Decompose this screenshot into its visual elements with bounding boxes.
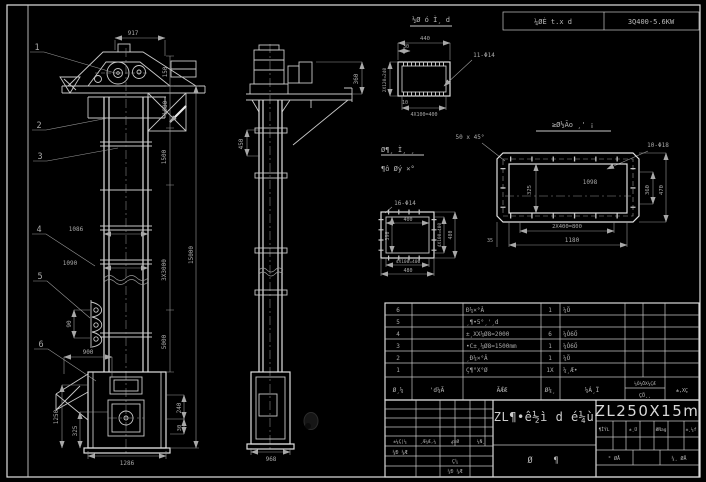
tb-rev-mark: ±¼Ç|¼ [393,439,407,445]
dim-det2-800: 2X400=800 [552,224,582,230]
dim-front-1080: 1080 [162,100,169,115]
detail-top-flange: ½Ø ó Ì¸ d 440 30 11-Φ14 2X120=240 10 4X1… [382,15,495,118]
dim-det2-chamfer: 50 x 45° [456,134,485,141]
cad-drawing-sheet: ¼ØÈ t.x d 3Q400-5.6KW [0,0,706,482]
bom-row-name: ¸¶•5°¸'¸d [466,319,499,326]
tb-design-label: ¼Ð ¼Æ [392,450,407,456]
tb-sheet-number: ¼¸ ØÅ [671,455,686,462]
bom-header-qty: Ø¼¸ [545,387,556,394]
detail-slot-flange: ≥Ø½Ão ¸' ¡ 50 x 45° 10-Φ18 1098 325 360 … [456,120,670,247]
dim-det3-480r: 480 [448,230,454,239]
dim-det1-bottom: 4X100=400 [410,112,437,118]
dim-side-968: 968 [266,456,277,463]
bom-row-no: 5 [396,319,400,326]
dim-front-1286: 1286 [120,460,135,467]
tb-small-3: ØÑag [656,426,667,433]
bom-header-weight-bottom: ÇÖ¸¸ [639,392,651,399]
dim-front-15000: 15000 [188,246,195,264]
dim-front-240: 240 [176,402,183,413]
tb-sheet-total: ° ØÅ [608,455,620,462]
dim-front-325: 325 [72,425,79,436]
dim-det2-35: 35 [487,238,493,244]
tb-check2-label: ¼Ð ¼Æ [447,469,462,475]
boot-casing [88,372,166,448]
view-notes: Ø¶¸ Ì¸ ¸ ¶ô Øý ×° [381,145,424,173]
callout-4: 4 [36,225,41,235]
bom-row-no: 6 [396,307,400,314]
bom-row-no: 3 [396,343,400,350]
dim-front-1500: 1500 [161,149,168,164]
bom-row-qty: 1 [548,343,552,350]
bom-row-name: •C±¸¼Ø8=1500mm [466,343,517,350]
bom-row-no: 1 [396,367,400,374]
bom-row-no: 4 [396,331,400,338]
header-process-label: ¼ØÈ t.x d [534,17,572,26]
note-line-1: Ø¶¸ Ì¸ ¸ [381,145,415,154]
tb-model-number: ZL250X15m [595,402,700,420]
front-elevation-linework [56,44,205,455]
dim-det3-holes: 16-Φ14 [394,200,416,207]
dim-front-90: 90 [66,320,73,328]
bom-row-mat: ¼Ò6Ö [563,331,578,338]
dim-front-3x3000: 3X3000 [161,259,168,281]
dim-det2-325: 325 [527,185,533,195]
bom-header-weight-top: ¼Ò¼ÖX¼ÇÆ [634,380,656,387]
callout-2: 2 [36,121,41,131]
note-line-2: ¶ô Øý ×° [381,165,415,173]
dim-front-1090: 1090 [63,260,78,267]
dim-det1-10: 10 [402,100,408,106]
dim-side-360: 360 [353,73,360,84]
bom-row-name: ¸Ð¼×°Â [466,355,488,362]
tb-scale-char-2: ¶ [553,456,558,466]
tb-check-label: Ç¼ [452,459,458,465]
dim-det2-holes: 10-Φ18 [647,142,669,149]
callout-6: 6 [38,340,43,350]
bom-header-code: 'd¼Ã [430,387,445,394]
detail-square-flange: 16-Φ14 400 390 4X100=400 480 4X100=400 4… [381,200,455,276]
bom-header-material: ¼Á¸Ï [585,387,600,394]
bom-row-no: 2 [396,355,400,362]
dim-det1-holes: 11-Φ14 [473,52,495,59]
bom-row-mat: ¼Ö [563,355,571,362]
detail1-title: ½Ø ó Ì¸ d [412,15,450,24]
callout-1: 1 [34,43,39,53]
dim-front-1086: 1086 [69,226,84,233]
dim-front-917: 917 [128,30,139,37]
tb-rev-count: ¸Æ¼Æ,¼ [420,439,437,445]
dim-det3-r400: 4X100=400 [437,223,443,248]
tb-drawing-title: ZL¶•ê½ì d é¼ù [494,410,594,424]
bom-row-mat: ¼¸Æ• [563,367,577,374]
dim-det1-440: 440 [420,36,430,42]
dim-side-450: 450 [238,138,245,149]
bom-row-qty: 1 [548,355,552,362]
bom-row-name: ±¸XX¼Ø8=2000 [466,331,510,338]
bom-table: 6 Ð¼×°Â 1 ¼Ö 5 ¸¶•5°¸'¸d 4 ±¸XX¼Ø8=2000 … [385,303,699,400]
dim-det3-b400: 4X100=400 [396,259,421,265]
side-elevation-linework [246,44,352,452]
dim-det1-left: 2X120=240 [382,68,388,93]
dim-det2-1098: 1098 [583,179,598,186]
dim-det3-b480: 480 [403,268,412,274]
dim-det2-1180: 1180 [565,237,580,244]
callout-5: 5 [37,272,42,282]
dim-front-5000: 5000 [161,334,168,349]
dim-det2-470: 470 [659,185,665,195]
bom-row-qty: 6 [548,331,552,338]
tb-small-4: ±¸¼f [686,427,697,433]
header-spec-label: 3Q400-5.6KW [628,18,675,26]
title-block: ±¼Ç|¼ ¸Æ¼Æ,¼ ؼ×Ø ¼Ñ¸ ¼Ð ¼Æ Ç¼ ¼Ð ¼Æ ZL¶•… [385,400,699,477]
tb-rev-date: ¼Ñ¸ [477,438,485,445]
bom-header-name: ÃǼÆ [497,386,508,394]
dim-det3-400: 400 [403,217,412,223]
detail2-title: ≥Ø½Ão ¸' ¡ [552,120,594,129]
side-elevation-dimensions: 450 360 968 [238,62,362,463]
bom-row-name: Ð¼×°Â [466,307,484,314]
dim-front-30: 30 [177,425,183,432]
tb-scale-char-1: Ø [527,455,532,466]
bom-row-mat: ¼Ö [563,307,571,314]
tb-small-1: ¶ÎÝL [599,426,610,433]
dim-det2-360: 360 [645,185,651,195]
callout-3: 3 [37,152,42,162]
dim-front-1250: 1250 [53,409,60,424]
tb-rev-file: ؼ×Ø [451,438,459,445]
bom-header-no: Ø¸¼ [393,387,404,394]
dim-det3-390: 390 [385,231,391,240]
dim-front-150: 150 [162,66,169,77]
bom-row-qty: 1 [548,307,552,314]
bom-row-name: Ç¶°X°Ø [466,367,488,374]
tb-small-2: ±¸Ü [629,426,637,433]
dim-front-900: 900 [83,349,94,356]
bom-row-qty: 1X [546,367,554,374]
dim-det1-30: 30 [403,44,409,50]
bom-row-mat: ¼Ò6Ö [563,343,578,350]
bom-header-remark: ±,XÇ [676,388,688,394]
